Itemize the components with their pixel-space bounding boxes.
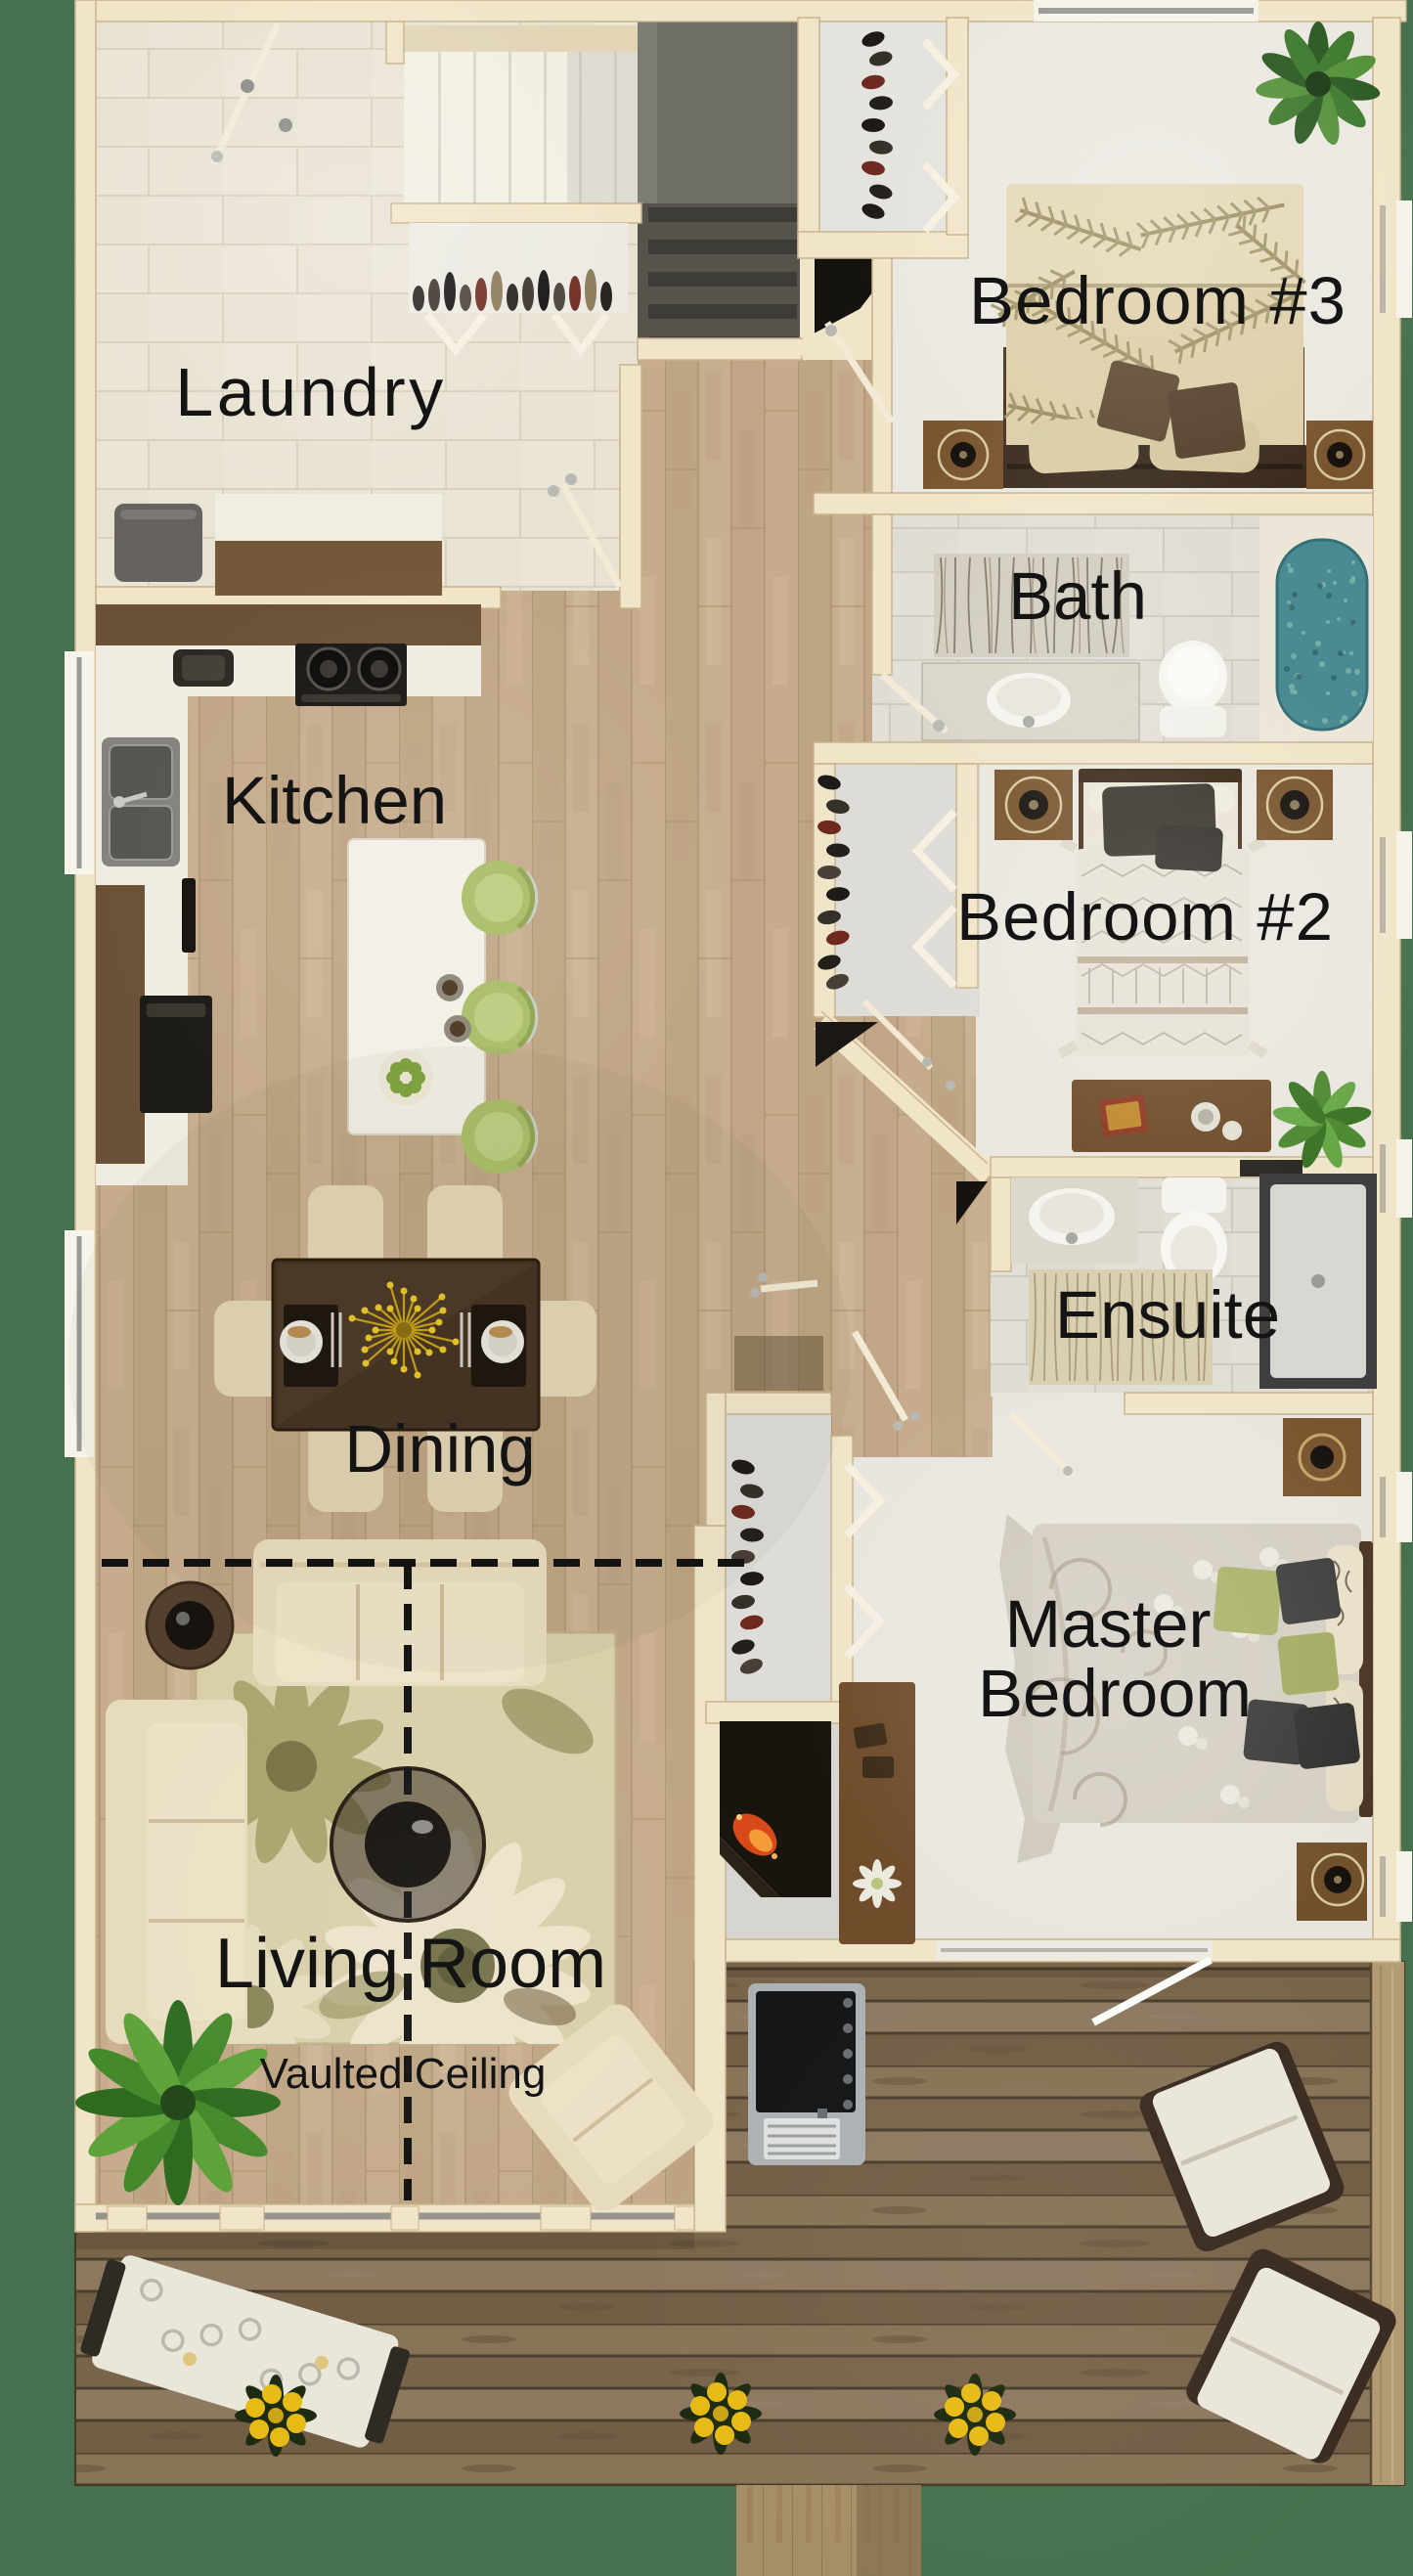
svg-text:Kitchen: Kitchen — [222, 763, 447, 838]
svg-text:Living Room: Living Room — [215, 1925, 606, 2003]
svg-text:Bath: Bath — [1008, 558, 1147, 634]
svg-text:Dining: Dining — [344, 1411, 536, 1487]
svg-text:Master: Master — [1005, 1586, 1212, 1662]
svg-text:Vaulted Ceiling: Vaulted Ceiling — [260, 2050, 547, 2098]
svg-text:Bedroom: Bedroom — [978, 1656, 1252, 1731]
svg-text:Bedroom #3: Bedroom #3 — [969, 263, 1347, 338]
svg-text:Laundry: Laundry — [175, 354, 446, 430]
svg-text:Ensuite: Ensuite — [1055, 1277, 1280, 1353]
svg-text:Bedroom #2: Bedroom #2 — [956, 879, 1334, 955]
